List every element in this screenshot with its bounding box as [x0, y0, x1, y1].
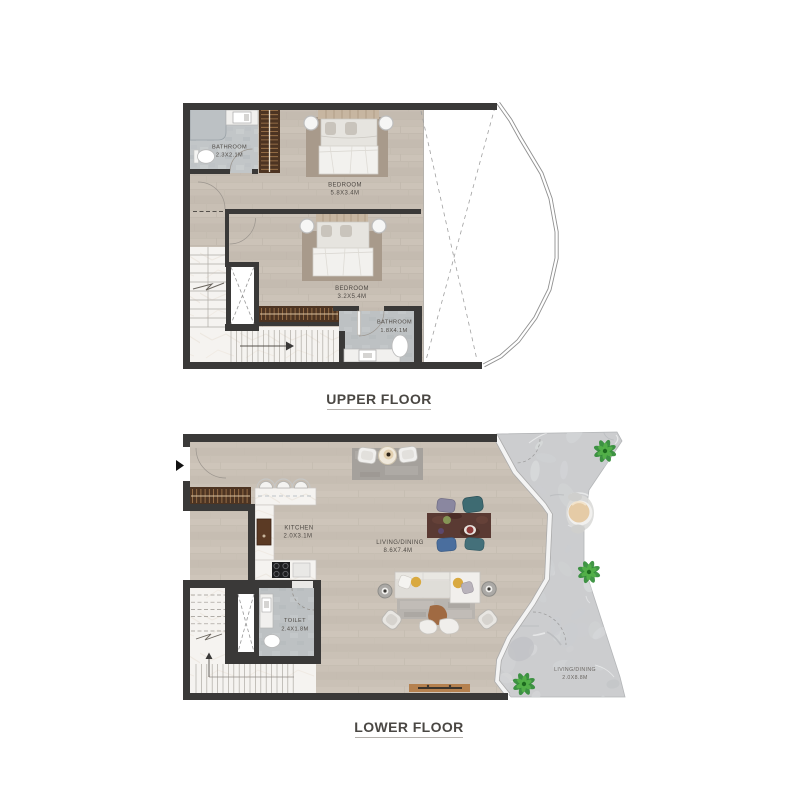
- svg-text:1.8X4.1M: 1.8X4.1M: [380, 328, 407, 334]
- svg-text:BEDROOM: BEDROOM: [328, 183, 362, 189]
- svg-text:2.0X8.8M: 2.0X8.8M: [562, 675, 587, 681]
- svg-text:BATHROOM: BATHROOM: [212, 145, 247, 151]
- svg-text:2.3X2.1M: 2.3X2.1M: [216, 153, 243, 159]
- svg-text:2.4X1.8M: 2.4X1.8M: [281, 627, 308, 633]
- svg-text:8.6X7.4M: 8.6X7.4M: [384, 548, 413, 554]
- svg-text:LIVING/DINING: LIVING/DINING: [376, 540, 424, 546]
- svg-text:2.0X3.1M: 2.0X3.1M: [284, 534, 313, 540]
- svg-text:LOWER FLOOR: LOWER FLOOR: [354, 719, 463, 735]
- svg-text:BEDROOM: BEDROOM: [335, 286, 369, 292]
- svg-text:5.8X3.4M: 5.8X3.4M: [331, 191, 360, 197]
- svg-text:TOILET: TOILET: [284, 618, 306, 624]
- svg-text:UPPER FLOOR: UPPER FLOOR: [326, 391, 432, 407]
- svg-text:BATHROOM: BATHROOM: [377, 320, 412, 326]
- svg-text:KITCHEN: KITCHEN: [284, 526, 313, 532]
- svg-text:3.2X5.4M: 3.2X5.4M: [338, 294, 367, 300]
- svg-text:LIVING/DINING: LIVING/DINING: [554, 667, 596, 673]
